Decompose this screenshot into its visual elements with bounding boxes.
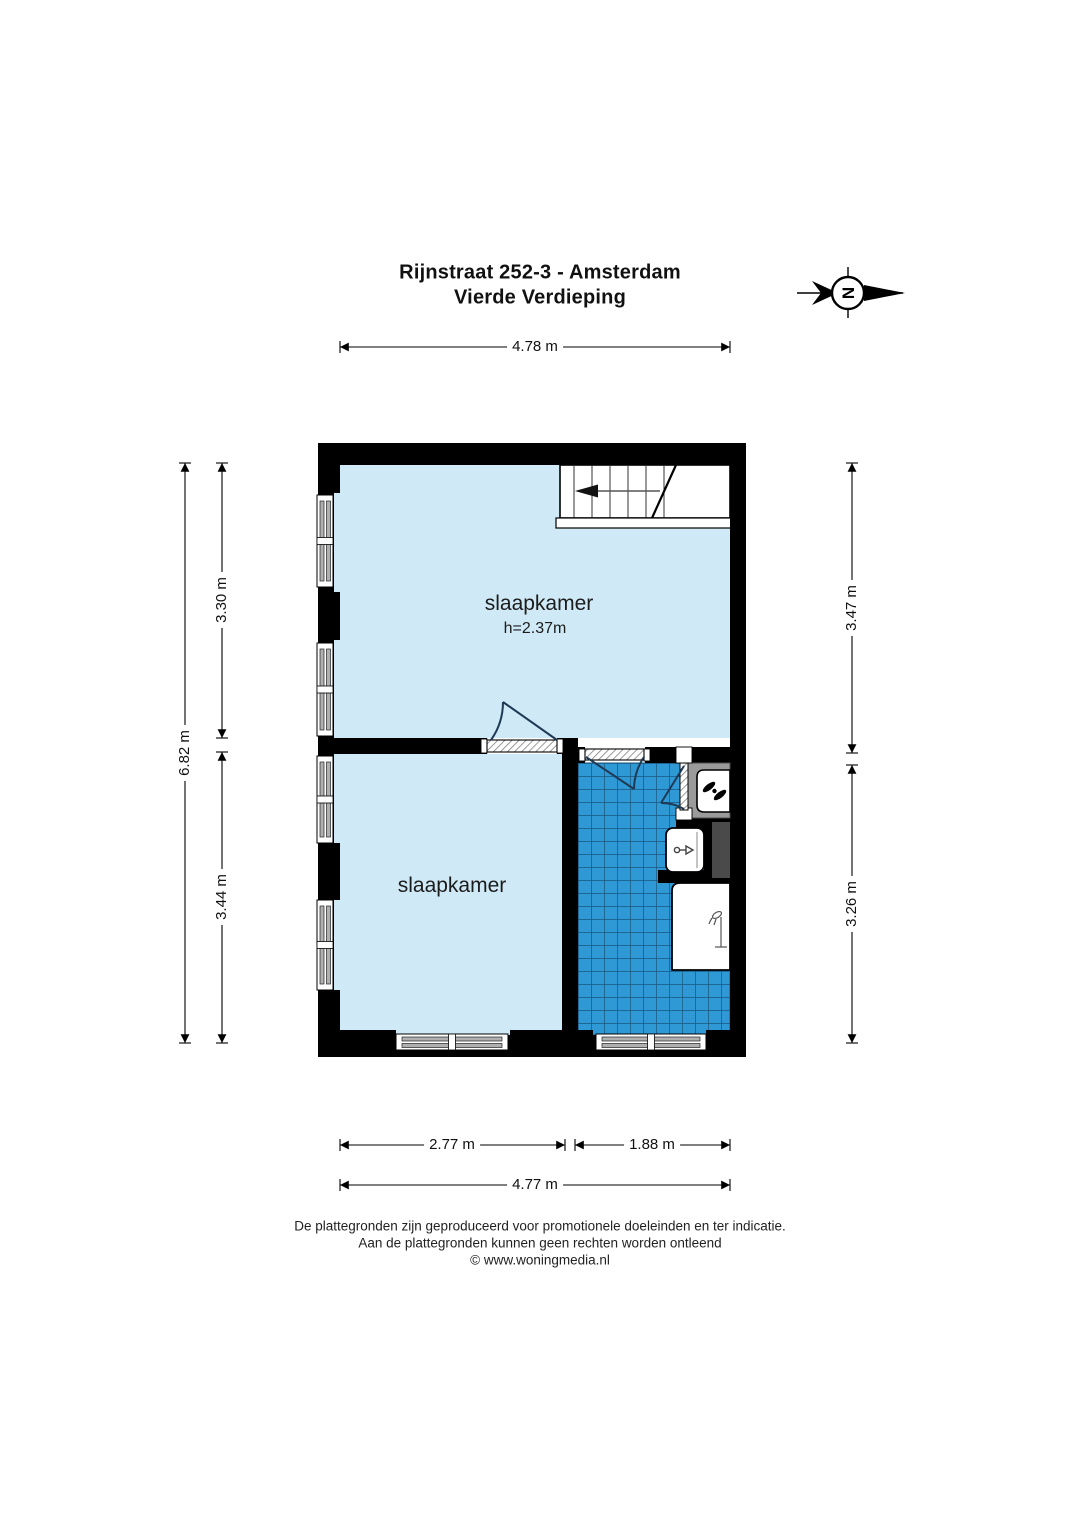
dim-right-upper: 3.47 m: [843, 580, 861, 636]
duct-shaft: [712, 822, 730, 878]
window: [596, 1034, 706, 1050]
dim-left-lower: 3.44 m: [213, 869, 231, 925]
disclaimer-line1: De plattegronden zijn geproduceerd voor …: [294, 1219, 786, 1234]
dim-left-upper: 3.30 m: [213, 572, 231, 628]
window: [317, 643, 333, 736]
dim-bottom-right: 1.88 m: [624, 1136, 680, 1154]
bedroom-top-height-note: h=2.37m: [504, 620, 567, 638]
disclaimer-line2: Aan de plattegronden kunnen geen rechten…: [358, 1236, 721, 1251]
dim-bottom-total: 4.77 m: [507, 1176, 563, 1194]
copyright-line: © www.woningmedia.nl: [470, 1253, 610, 1268]
window: [317, 495, 333, 587]
dim-left-total: 6.82 m: [176, 725, 194, 781]
compass-letter: N: [839, 287, 858, 299]
dim-bottom-left: 2.77 m: [424, 1136, 480, 1154]
plan-title-line2: Vierde Verdieping: [454, 287, 626, 310]
stairs: [556, 465, 732, 528]
plan-title-line1: Rijnstraat 252-3 - Amsterdam: [399, 262, 681, 285]
wall-bathroom-left: [562, 738, 578, 1035]
wall-top: [318, 443, 746, 465]
north-arrow-icon: N: [797, 267, 905, 318]
bedroom-bottom-label: slaapkamer: [398, 874, 507, 898]
window: [317, 756, 333, 843]
window: [317, 900, 333, 990]
bedroom-top-label: slaapkamer: [485, 592, 594, 616]
dim-top-width: 4.78 m: [507, 338, 563, 356]
shower: [672, 883, 730, 970]
dim-right-lower: 3.26 m: [843, 876, 861, 932]
floor-plan-drawing: N: [0, 0, 1080, 1528]
floor-plan-page: N Rijnstraat 252-3 - Amsterdam Vierde Ve…: [0, 0, 1080, 1528]
window: [396, 1034, 508, 1050]
wall-divider: [318, 738, 487, 754]
washbasin: [666, 828, 704, 872]
